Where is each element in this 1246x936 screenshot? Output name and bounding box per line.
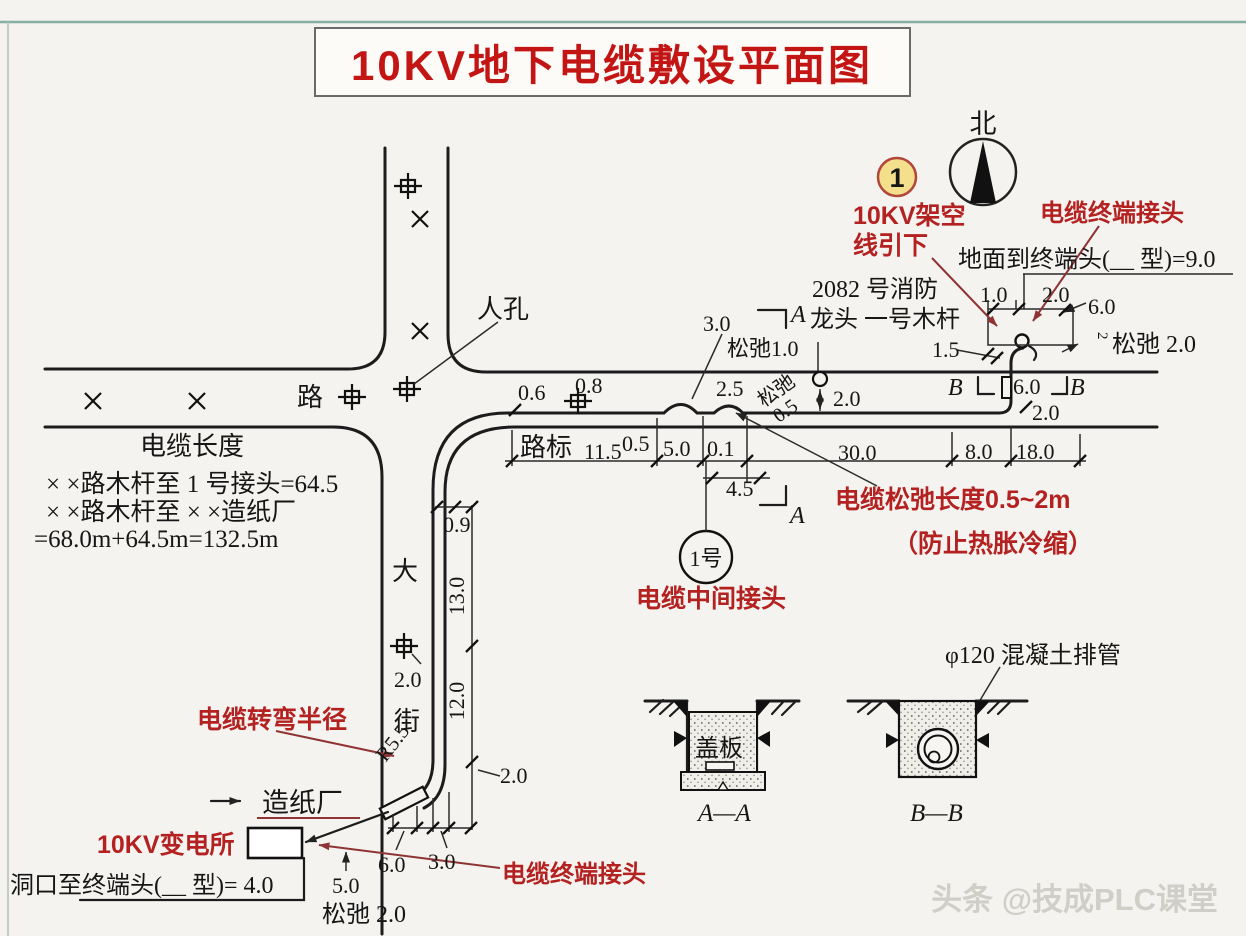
north-road-left-edge <box>45 148 385 369</box>
north-needle-icon <box>970 141 996 203</box>
cable-run-lower <box>424 427 1157 808</box>
dim-label: 2.0 <box>500 763 528 788</box>
north-compass: 北 <box>950 109 1016 205</box>
cable-length-heading: 电缆长度 <box>140 432 244 461</box>
dim-label: 2.0 <box>1042 282 1070 307</box>
overhead-line-note-1: 10KV架空 <box>853 201 966 230</box>
joint-1-label: 1号 <box>689 546 722 571</box>
dim-label: 0.1 <box>707 436 735 461</box>
dim-label: 3.0 <box>703 311 731 336</box>
slack-symbol: 2 <box>1094 332 1110 340</box>
diagram-labels: 地面到终端头(__ 型)=9.0 2082 号消防 龙头 一号木杆 人孔 路 路… <box>10 246 1216 899</box>
dim-label: 6.0 <box>378 852 406 877</box>
dim-label: 12.0 <box>444 682 469 721</box>
dim-label: 0.6 <box>518 380 546 405</box>
dim-label: 5.0 <box>332 873 360 898</box>
dim-label: 0.8 <box>575 373 603 398</box>
x-marker-icon <box>85 393 101 409</box>
hydrant-number-label: 2082 号消防 <box>812 276 938 303</box>
dim-label: 2.0 <box>1032 400 1060 425</box>
pole-cable-hook <box>1029 346 1036 360</box>
dim-label: 5.0 <box>663 436 691 461</box>
dim-label: 1.5 <box>932 337 960 362</box>
fire-hydrant-icon <box>813 372 827 386</box>
middle-joint-note: 电缆中间接头 <box>636 584 786 613</box>
dim-label: 13.0 <box>444 577 469 616</box>
section-b-left-bracket <box>978 377 994 394</box>
manhole-leader <box>414 322 498 384</box>
dim-label: 0.5 <box>622 431 650 456</box>
plan-sheet: 10KV地下电缆敷设平面图 北 1 <box>0 0 1246 936</box>
dim-label: 松弛1.0 <box>727 336 799 361</box>
section-a-top-bracket <box>758 310 786 328</box>
dim-label: 6.0 <box>1013 374 1041 399</box>
x-marker-icon <box>412 211 428 227</box>
utility-pole-icon <box>394 173 422 199</box>
dim-label: 松弛 2.0 <box>322 901 406 928</box>
overhead-line-note-2: 线引下 <box>853 231 928 260</box>
dim-label: 3.0 <box>428 849 456 874</box>
dim-label: 1.0 <box>980 282 1008 307</box>
dim-label: 4.5 <box>726 476 754 501</box>
hydrant-pole-label: 龙头 一号木杆 <box>810 306 960 333</box>
section-b-letter: B <box>1070 375 1085 401</box>
utility-pole-icon <box>338 384 366 410</box>
watermark: 头条 @技成PLC课堂 <box>931 882 1218 917</box>
utility-pole-icon <box>393 376 421 402</box>
concrete-pipe-label: φ120 混凝土排管 <box>945 642 1121 669</box>
dim-label: 11.5 <box>584 439 622 464</box>
road-label: 路 <box>297 383 323 412</box>
slack-reason-note: （防止热胀冷缩） <box>893 529 1093 558</box>
dimension-lines <box>346 274 1233 871</box>
ground-to-terminal-note: 地面到终端头(__ 型)=9.0 <box>958 246 1216 273</box>
section-bb-label: B—B <box>910 800 963 827</box>
slack-length-note: 电缆松弛长度0.5~2m <box>835 485 1071 514</box>
dim-label: 0.9 <box>443 512 471 537</box>
cable-length-line-2: × ×路木杆至 × ×造纸厂 <box>46 498 296 526</box>
dim-label: 2.0 <box>833 386 861 411</box>
badge-number: 1 <box>889 163 904 193</box>
dim-label: 18.0 <box>1016 439 1055 464</box>
manhole-label: 人孔 <box>477 295 529 324</box>
section-b-right-bracket <box>1052 377 1067 394</box>
dim-label: 2.5 <box>716 376 744 401</box>
bend-radius-note: 电缆转弯半径 <box>197 705 347 734</box>
cable-length-line-3: =68.0m+64.5m=132.5m <box>34 526 279 553</box>
opening-to-terminal-note: 洞口至终端头(__ 型)= 4.0 <box>10 872 274 899</box>
dim-label: 8.0 <box>965 439 993 464</box>
section-b-letter: B <box>948 375 963 401</box>
cover-plate-label: 盖板 <box>695 735 743 762</box>
x-marker-icon <box>412 323 428 339</box>
section-a-letter: A <box>788 503 805 529</box>
dim-label: 松弛 2.0 <box>1112 331 1196 358</box>
dim-label: 30.0 <box>838 440 877 465</box>
dim-label: 2.0 <box>394 667 422 692</box>
section-a-letter: A <box>789 302 806 328</box>
cable-terminal-bottom-note: 电缆终端接头 <box>502 860 646 888</box>
title-block: 10KV地下电缆敷设平面图 <box>315 28 910 96</box>
road-sign-label: 路标 <box>520 433 572 462</box>
cable-length-line-1: × ×路木杆至 1 号接头=64.5 <box>46 470 338 498</box>
marker-badge-1: 1 <box>878 158 916 196</box>
paper-mill-label: 造纸厂 <box>262 788 343 818</box>
street-name-1: 大 <box>392 557 418 586</box>
section-bb-drawing <box>848 701 1027 777</box>
north-label: 北 <box>970 109 997 139</box>
section-aa-label: A—A <box>696 800 752 827</box>
page-title: 10KV地下电缆敷设平面图 <box>351 42 873 89</box>
substation-note: 10KV变电所 <box>97 830 235 859</box>
cable-end-terminal <box>380 787 428 819</box>
plan-drawing: 10KV地下电缆敷设平面图 北 1 <box>0 0 1246 936</box>
duct-crossing-symbol <box>1002 377 1011 398</box>
dim-label: 6.0 <box>1088 294 1116 319</box>
cable-terminal-top-note: 电缆终端接头 <box>1040 199 1184 227</box>
substation-box <box>248 828 302 858</box>
x-marker-icon <box>189 393 205 409</box>
section-a-bottom-bracket <box>760 486 786 505</box>
